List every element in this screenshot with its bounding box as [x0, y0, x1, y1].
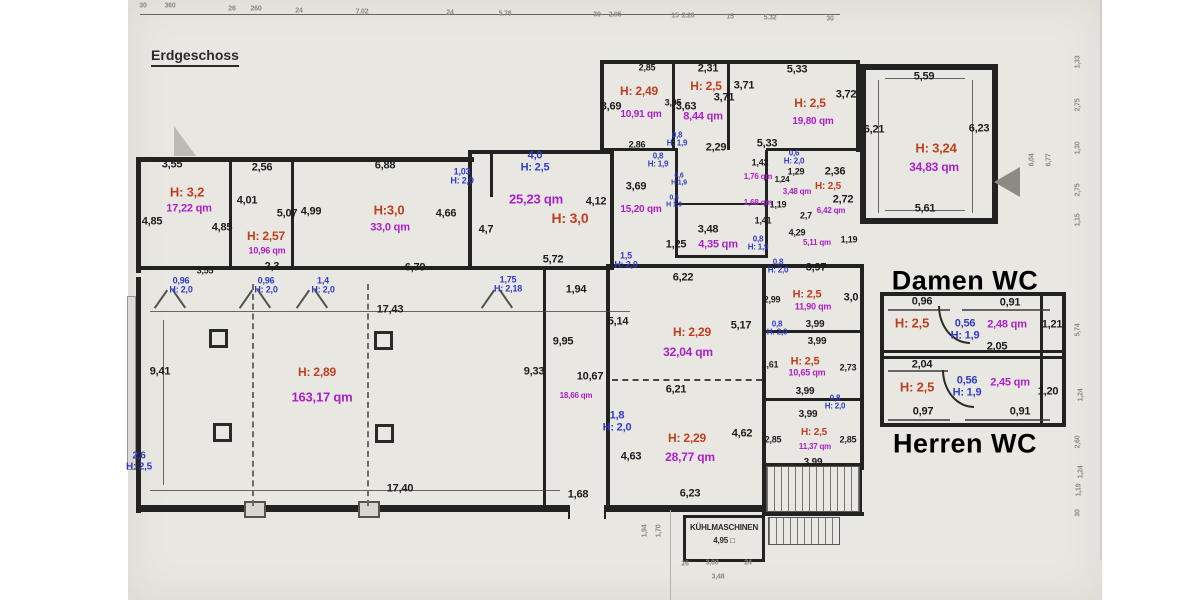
dimension-label: 1,68 [568, 490, 589, 501]
side-dimension-tick: 1,15 [1075, 214, 1082, 227]
floor-title: Erdgeschoss [151, 47, 239, 67]
door-width: 0,56 [951, 318, 980, 330]
door-height: H: 2,0 [768, 267, 789, 275]
room-divider-dashed [612, 379, 762, 381]
dimension-label: 6,23 [680, 489, 701, 500]
dimension-label: 5,33 [757, 139, 778, 150]
wall-segment [860, 218, 998, 224]
dimension-label: 2,85 [840, 436, 857, 445]
door-height: H: 1,9 [951, 330, 980, 342]
dimension-label: 2,86 [629, 141, 646, 150]
side-dimension-tick: 1,24 [1078, 389, 1085, 402]
door-width: 0,56 [953, 375, 982, 387]
side-dimension-tick: 1,19 [1076, 484, 1083, 497]
dimension-label: 3,99 [796, 387, 815, 397]
dimension-label: 4,01 [237, 196, 258, 207]
room-area-label: 34,83 qm [909, 161, 959, 173]
door-height: H: 2,0 [614, 261, 637, 270]
top-dimension-tick: 30 [593, 12, 600, 19]
wall-segment [727, 62, 730, 150]
door-height: H: 2,18 [494, 285, 522, 294]
room-area-label: 32,04 qm [663, 346, 713, 358]
dimension-label: 2,31 [698, 64, 719, 75]
top-dimension-tick: 30 [139, 3, 146, 10]
dimension-label: 3,55 [197, 267, 214, 276]
wall-segment [683, 515, 765, 518]
dimension-label: 4,63 [621, 452, 642, 463]
door-width: 1,8 [603, 410, 632, 422]
door-height: H: 2,5 [126, 462, 152, 473]
dimension-label: 1,20 [1038, 387, 1059, 398]
dimension-label: 1,42 [752, 159, 769, 168]
door-height: H: 2,0 [825, 403, 846, 411]
window-band [127, 296, 136, 470]
dimension-label: 6,21 [864, 125, 885, 136]
door-size-label: 0,6H: 2,0 [784, 150, 805, 167]
column [213, 423, 232, 442]
dimension-label: 2,29 [706, 143, 727, 154]
room-area-label: 33,0 qm [370, 223, 410, 234]
dimension-label: 3,99 [808, 337, 827, 347]
dimension-label: 3,99 [806, 320, 825, 330]
wall-segment [880, 356, 1066, 359]
dimension-label: 3,71 [734, 81, 755, 92]
dimension-label: 3,71 [714, 93, 735, 104]
room-height-label: H: 2,5 [900, 381, 934, 394]
paper-fold-seam [670, 510, 671, 600]
top-dimension-tick: 7.02 [356, 9, 369, 16]
dimension-label: 2,61 [762, 361, 779, 370]
side-dimension-tick: 1,24 [1078, 466, 1085, 479]
dimension-label: 5,61 [915, 204, 936, 215]
top-dimension-tick: 2.26 [682, 13, 695, 20]
dimension-label: 4,29 [789, 229, 806, 238]
dimension-line [150, 490, 560, 491]
room-height-label: H: 2,5 [801, 428, 827, 438]
door-height: H: 2,0 [784, 158, 805, 166]
dimension-label: 1,41 [755, 217, 772, 226]
door-height: H: 1,9 [648, 161, 669, 169]
room-height-label: H: 2,5 [895, 317, 929, 330]
room-area-label: 5,11 qm [803, 239, 831, 247]
door-height: H: 2,5 [521, 162, 550, 174]
dimension-line [888, 419, 950, 421]
door-size-label: 0,8H: 2,0 [768, 259, 789, 276]
room-height-label: H: 2,49 [620, 85, 658, 97]
top-dimension-tick: 26 [228, 6, 235, 13]
room-area-label: 10,96 qm [249, 247, 286, 256]
dimension-label: 1,94 [566, 285, 587, 296]
room-height-label: H: 2,29 [668, 432, 706, 444]
room-area-label: 11,90 qm [795, 303, 831, 312]
column [375, 424, 394, 443]
door-width: 2,6 [126, 452, 152, 463]
door-size-label: 0,8H: 2,0 [767, 321, 788, 338]
dimension-label: 1,24 [775, 176, 790, 184]
dimension-label: 0,97 [913, 407, 934, 418]
wall-segment [860, 64, 866, 224]
door-height: H: 2,0 [450, 177, 473, 186]
door-size-label: 0,8H: 2,0 [825, 395, 846, 412]
top-dimension-tick: 24 [446, 10, 453, 17]
room-area-label: 25,23 qm [509, 193, 563, 206]
staircase [768, 517, 840, 545]
dimension-label: 6,23 [969, 124, 990, 135]
room-area-label: 17,22 qm [166, 204, 211, 215]
dimension-label: 1,21 [1042, 320, 1063, 331]
room-height-label: H: 2,5 [791, 357, 820, 368]
room-height-label: H: 2,5 [815, 182, 841, 192]
dimension-label: 0,96 [912, 297, 933, 308]
top-dimension-tick: 15 [671, 13, 678, 20]
door-size-label: 0,56H: 1,9 [953, 375, 982, 398]
room-area-label: 10,91 qm [620, 110, 661, 120]
side-dimension-tick: 6,04 [1029, 154, 1036, 167]
room-height-label: H: 2,57 [247, 230, 285, 242]
room-height-label: H: 2,29 [673, 326, 711, 338]
door-height: H: 1,9 [748, 244, 769, 252]
wall-segment [880, 423, 1066, 427]
dimension-label: 3,0 [844, 293, 859, 304]
dimension-label: 5,72 [543, 255, 564, 266]
door-size-label: 0,96H: 2,0 [254, 277, 277, 296]
wall-segment [490, 152, 493, 197]
room-area-label: 3,48 qm [783, 188, 811, 196]
room-area-label: 28,77 qm [665, 451, 715, 463]
room-height-label: H: 2,5 [793, 290, 822, 301]
wall-segment [606, 264, 610, 512]
side-dimension-tick: 1,94 [642, 525, 649, 538]
top-dimension-tick: 360 [164, 3, 175, 10]
side-dimension-tick: 2,60 [1075, 436, 1082, 449]
wall-segment [229, 159, 232, 268]
dimension-label: 4,7 [479, 225, 494, 236]
dimension-label: 0,91 [1000, 298, 1021, 309]
wall-segment [992, 64, 998, 224]
wall-segment [880, 292, 884, 427]
room-area-label: 1,76 qm [744, 173, 772, 181]
room-area-label: 19,80 qm [792, 117, 833, 127]
herren-wc-heading: Herren WC [893, 429, 1037, 460]
door-size-label: 1,03H: 2,0 [450, 168, 473, 187]
door-height: H: 2,0 [311, 286, 334, 295]
wall-segment [136, 157, 141, 273]
dimension-label: 1,29 [788, 168, 805, 177]
dimension-label: 6,79 [405, 263, 426, 274]
dimension-label: 17,40 [387, 484, 414, 495]
side-dimension-tick: 2,75 [1075, 99, 1082, 112]
dimension-line [140, 14, 840, 15]
door-size-label: 0,6H 1,9 [666, 195, 682, 210]
wall-segment [136, 277, 141, 513]
dimension-label: 9,33 [524, 367, 545, 378]
door-size-label: 0,8H: 1,9 [667, 132, 688, 149]
door-size-label: 0,6H 1,9 [671, 173, 687, 188]
room-height-label: H: 3,24 [915, 142, 956, 155]
side-dimension-tick: 6,77 [1046, 154, 1053, 167]
top-dimension-tick: 30 [826, 16, 833, 23]
dimension-label: 5,33 [787, 65, 808, 76]
column [374, 331, 393, 350]
door-height: H: 2,0 [254, 286, 277, 295]
dimension-label: 4,99 [301, 207, 322, 218]
door-width: 4,0 [521, 150, 550, 162]
dimension-label: 2,36 [825, 167, 846, 178]
dimension-label: 2,99 [764, 296, 781, 305]
top-dimension-tick: 2.95 [609, 12, 622, 19]
side-dimension-tick: 1,70 [656, 525, 663, 538]
door-height: H: 2,0 [767, 329, 788, 337]
dimension-label: 5,14 [608, 317, 629, 328]
dimension-label: 2,73 [840, 364, 857, 373]
paper-edge [1100, 0, 1102, 560]
dimension-label: 3,99 [804, 458, 823, 468]
door-size-label: 1,5H: 2,0 [614, 252, 637, 271]
dimension-label: 2,3 [265, 262, 280, 273]
door-size-label: 0,8H: 1,9 [648, 153, 669, 170]
top-dimension-tick: 24 [295, 8, 302, 15]
room-area-label: 163,17 qm [291, 391, 352, 404]
wall-segment [1062, 292, 1066, 427]
door-height: H: 2,0 [603, 422, 632, 434]
room-height-label: H: 2,89 [298, 366, 336, 378]
wall-segment [766, 148, 860, 151]
room-height-label: H:3,0 [374, 204, 405, 217]
top-dimension-tick: 15 [726, 14, 733, 21]
floor-plan: Erdgeschoss Damen WC Herren WC KÜHLMASCH… [0, 0, 1200, 600]
wall-segment [683, 515, 686, 562]
wall-segment [568, 505, 570, 519]
dimension-line [972, 80, 973, 213]
room-area-label: 10,65 qm [789, 369, 826, 378]
top-dimension-tick: 260 [250, 6, 261, 13]
wall-segment [468, 266, 614, 270]
side-dimension-tick: 30 [1075, 509, 1082, 516]
dimension-line [962, 309, 1050, 311]
side-dimension-tick: 26 [681, 561, 688, 568]
room-area-label: 8,44 qm [683, 112, 723, 123]
door-size-label: 1,4H: 2,0 [311, 277, 334, 296]
room-area-label: 11,37 qm [799, 443, 831, 451]
dimension-label: 9,41 [150, 367, 171, 378]
door-size-label: 1,75H: 2,18 [494, 276, 522, 295]
dimension-label: 6,88 [375, 161, 396, 172]
door-height: H 1,9 [666, 202, 682, 209]
kuehlmaschinen-label: KÜHLMASCHINEN [690, 524, 758, 532]
dimension-line [965, 419, 1050, 421]
side-dimension-tick: 2,75 [1075, 184, 1082, 197]
side-dimension-tick: 24 [744, 560, 751, 567]
side-dimension-tick: 3,48 [712, 574, 725, 581]
side-dimension-tick: 5,74 [1075, 324, 1082, 337]
column [209, 329, 228, 348]
room-height-label: H: 3,0 [552, 211, 589, 225]
dimension-label: 4,12 [586, 197, 607, 208]
wall-segment [762, 515, 765, 562]
dimension-label: 3,69 [626, 182, 647, 193]
dimension-label: 5,07 [277, 209, 298, 220]
dimension-label: 2,05 [987, 342, 1008, 353]
door-width: 0,6 [666, 195, 682, 202]
wall-segment [880, 292, 1066, 296]
dimension-label: 2,85 [765, 436, 782, 445]
door-size-label: 2,6H: 2,5 [126, 452, 152, 473]
dimension-label: 1,25 [666, 240, 687, 251]
dimension-label: 5,59 [914, 72, 935, 83]
dimension-label: 3,99 [799, 410, 818, 420]
section-dash-line [367, 284, 369, 506]
dimension-label: 4,85 [212, 223, 233, 234]
dimension-label: 2,7 [800, 212, 812, 221]
wall-segment [543, 268, 546, 508]
top-dimension-tick: 5.32 [764, 15, 777, 22]
dimension-label: 4,62 [732, 429, 753, 440]
dimension-label: 2,72 [833, 195, 854, 206]
room-area-label: 15,20 qm [620, 205, 661, 215]
room-area-label: 1,68 qm [744, 199, 772, 207]
room-height-label: H: 2,5 [794, 97, 825, 109]
room-area-label: 18,66 qm [560, 392, 593, 400]
door-width: 0,6 [671, 173, 687, 180]
staircase [766, 466, 860, 512]
door-size-label: 0,8H: 1,9 [748, 236, 769, 253]
dimension-line [878, 80, 879, 213]
dimension-label: 10,67 [577, 372, 604, 383]
door-size-label: 0,96H: 2,0 [169, 277, 192, 296]
dimension-label: 1,19 [841, 236, 858, 245]
room-height-label: H: 3,2 [170, 186, 204, 199]
dimension-label: 4,85 [142, 217, 163, 228]
wall-segment [136, 505, 568, 512]
wall-segment [683, 559, 765, 562]
side-dimension-tick: 3,00 [706, 560, 719, 567]
room-area-label: 6,42 qm [817, 207, 845, 215]
wall-segment [136, 157, 474, 162]
wall-segment [610, 150, 614, 268]
side-dimension-tick: 1,33 [1075, 56, 1082, 69]
door-height: H: 1,9 [667, 140, 688, 148]
wall-segment [880, 350, 1066, 353]
door-height: H: 2,0 [169, 286, 192, 295]
dimension-line [163, 320, 164, 485]
wall-segment [1040, 296, 1043, 423]
dimension-label: 6,21 [666, 385, 687, 396]
wall-segment [136, 266, 477, 270]
top-dimension-tick: 5.76 [499, 11, 512, 18]
dimension-label: 3,72 [836, 90, 857, 101]
kuehlmaschinen-area-label: 4,95 □ [713, 537, 734, 545]
dimension-label: 9,95 [553, 337, 574, 348]
dimension-label: 3,55 [162, 160, 183, 171]
door-height: H 1,9 [671, 180, 687, 187]
room-height-label: H: 2,5 [690, 80, 721, 92]
section-dash-line [252, 284, 254, 506]
dimension-label: 2,85 [639, 64, 656, 73]
room-area-label: 4,35 qm [698, 240, 738, 251]
pilaster [358, 501, 380, 518]
dimension-label: 3,97 [806, 263, 827, 274]
dimension-label: 4,66 [436, 209, 457, 220]
door-size-label: 4,0H: 2,5 [521, 150, 550, 173]
room-area-label: 2,45 qm [990, 378, 1030, 389]
dimension-label: 6,22 [673, 273, 694, 284]
pilaster [244, 501, 266, 518]
dimension-label: 3,48 [698, 225, 719, 236]
dimension-label: 3,69 [601, 102, 622, 113]
wall-segment [762, 512, 864, 516]
wall-segment [860, 264, 864, 470]
dimension-label: 5,17 [731, 321, 752, 332]
dimension-label: 0,91 [1010, 407, 1031, 418]
door-height: H: 1,9 [953, 387, 982, 399]
side-dimension-tick: 1,30 [1075, 142, 1082, 155]
room-area-label: 2,48 qm [987, 320, 1027, 331]
door-size-label: 0,56H: 1,9 [951, 318, 980, 341]
wall-segment [860, 64, 998, 70]
wall-segment [606, 505, 768, 512]
wall-segment [604, 505, 606, 519]
dimension-label: 2,04 [912, 360, 933, 371]
door-size-label: 1,8H: 2,0 [603, 410, 632, 433]
wall-segment [764, 398, 862, 401]
dimension-label: 17,43 [377, 305, 404, 316]
dimension-label: 2,56 [252, 163, 273, 174]
wall-segment [675, 255, 768, 258]
